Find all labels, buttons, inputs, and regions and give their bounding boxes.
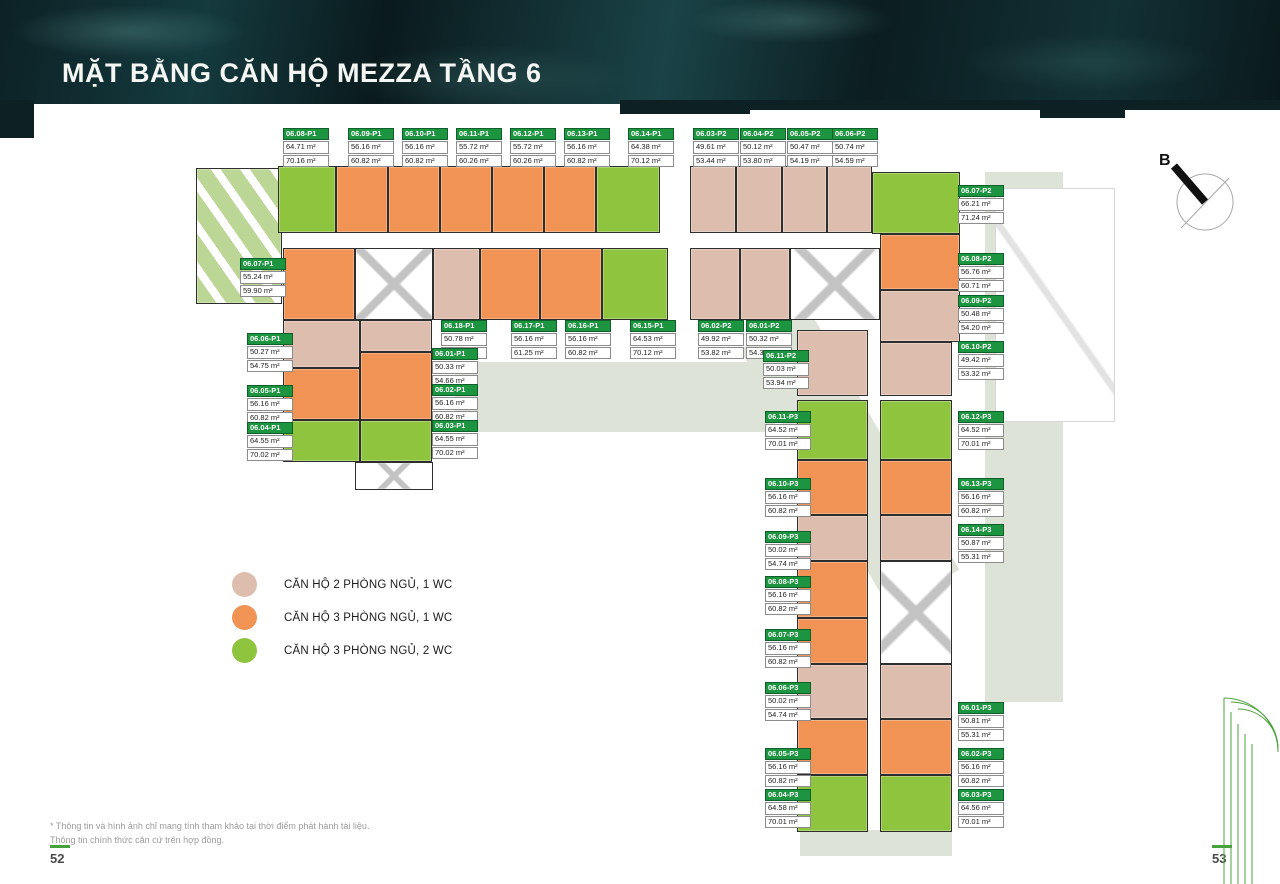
unit-code: 06.14-P3 <box>958 524 1004 536</box>
unit-code: 06.04-P2 <box>740 128 786 140</box>
plan-unit-block <box>544 166 596 233</box>
unit-label-06.02-P1: 06.02-P156.16 m²60.82 m² <box>432 384 478 423</box>
unit-area-gross: 53.44 m² <box>693 155 739 167</box>
unit-code: 06.02-P2 <box>698 320 744 332</box>
unit-label-06.12-P3: 06.12-P364.52 m²70.01 m² <box>958 411 1004 450</box>
unit-area-net: 64.52 m² <box>958 424 1004 436</box>
unit-area-gross: 53.32 m² <box>958 368 1004 380</box>
brochure-page: 06.08-P164.71 m²70.16 m²06.09-P156.16 m²… <box>0 0 1280 884</box>
plan-unit-block <box>827 166 872 233</box>
unit-label-06.08-P1: 06.08-P164.71 m²70.16 m² <box>283 128 329 167</box>
unit-label-06.01-P3: 06.01-P350.81 m²55.31 m² <box>958 702 1004 741</box>
unit-label-06.14-P3: 06.14-P350.87 m²55.31 m² <box>958 524 1004 563</box>
plan-unit-block <box>540 248 602 320</box>
unit-area-net: 64.56 m² <box>958 802 1004 814</box>
unit-area-gross: 70.12 m² <box>628 155 674 167</box>
plan-unit-block <box>433 248 480 320</box>
unit-area-net: 56.16 m² <box>564 141 610 153</box>
marble-fragment <box>745 100 1280 110</box>
unit-code: 06.02-P1 <box>432 384 478 396</box>
plan-unit-block <box>283 320 360 368</box>
unit-area-net: 50.78 m² <box>441 333 487 345</box>
unit-label-06.13-P1: 06.13-P156.16 m²60.82 m² <box>564 128 610 167</box>
unit-area-net: 50.12 m² <box>740 141 786 153</box>
unit-area-net: 56.16 m² <box>511 333 557 345</box>
unit-label-06.07-P2: 06.07-P266.21 m²71.24 m² <box>958 185 1004 224</box>
unit-area-net: 66.21 m² <box>958 198 1004 210</box>
unit-code: 06.06-P3 <box>765 682 811 694</box>
unit-label-06.07-P1: 06.07-P155.24 m²59.90 m² <box>240 258 286 297</box>
unit-area-net: 56.16 m² <box>765 589 811 601</box>
unit-area-gross: 53.80 m² <box>740 155 786 167</box>
unit-area-net: 50.03 m² <box>763 363 809 375</box>
unit-code: 06.10-P1 <box>402 128 448 140</box>
unit-label-06.02-P2: 06.02-P249.92 m²53.82 m² <box>698 320 744 359</box>
unit-code: 06.06-P2 <box>832 128 878 140</box>
marble-fragment <box>0 100 34 138</box>
unit-label-06.11-P2: 06.11-P250.03 m²53.94 m² <box>763 350 809 389</box>
unit-area-net: 50.81 m² <box>958 715 1004 727</box>
plan-unit-block <box>283 420 360 462</box>
unit-area-net: 49.92 m² <box>698 333 744 345</box>
unit-code: 06.07-P3 <box>765 629 811 641</box>
unit-area-net: 56.16 m² <box>565 333 611 345</box>
unit-code: 06.13-P1 <box>564 128 610 140</box>
unit-area-gross: 54.75 m² <box>247 360 293 372</box>
unit-label-06.14-P1: 06.14-P164.38 m²70.12 m² <box>628 128 674 167</box>
compass: B <box>1155 150 1241 240</box>
unit-code: 06.13-P3 <box>958 478 1004 490</box>
page-number-left-value: 52 <box>50 851 64 866</box>
unit-area-net: 50.27 m² <box>247 346 293 358</box>
unit-label-06.10-P2: 06.10-P249.42 m²53.32 m² <box>958 341 1004 380</box>
unit-code: 06.09-P1 <box>348 128 394 140</box>
unit-code: 06.01-P3 <box>958 702 1004 714</box>
unit-area-gross: 70.01 m² <box>765 816 811 828</box>
unit-label-06.16-P1: 06.16-P156.16 m²60.82 m² <box>565 320 611 359</box>
unit-label-06.09-P1: 06.09-P156.16 m²60.82 m² <box>348 128 394 167</box>
unit-area-gross: 60.82 m² <box>402 155 448 167</box>
plan-unit-block <box>880 775 952 832</box>
unit-area-net: 64.38 m² <box>628 141 674 153</box>
unit-area-gross: 70.01 m² <box>958 438 1004 450</box>
plan-unit-block <box>440 166 492 233</box>
unit-code: 06.03-P1 <box>432 420 478 432</box>
legend-label: CĂN HỘ 3 PHÒNG NGỦ, 2 WC <box>284 645 452 657</box>
unit-label-06.12-P1: 06.12-P155.72 m²60.26 m² <box>510 128 556 167</box>
unit-label-06.17-P1: 06.17-P156.16 m²61.25 m² <box>511 320 557 359</box>
unit-code: 06.09-P2 <box>958 295 1004 307</box>
unit-label-06.08-P2: 06.08-P256.76 m²60.71 m² <box>958 253 1004 292</box>
unit-area-gross: 54.74 m² <box>765 709 811 721</box>
plan-unit-block <box>360 352 432 420</box>
unit-code: 06.09-P3 <box>765 531 811 543</box>
plan-unit-block <box>388 166 440 233</box>
plan-unit-block <box>355 248 433 320</box>
unit-area-gross: 70.02 m² <box>432 447 478 459</box>
unit-area-net: 49.61 m² <box>693 141 739 153</box>
unit-area-net: 55.24 m² <box>240 271 286 283</box>
plan-unit-block <box>880 342 952 396</box>
unit-code: 06.12-P1 <box>510 128 556 140</box>
plan-unit-block <box>690 166 736 233</box>
footnote-line1: * Thông tin và hình ảnh chỉ mang tính th… <box>50 820 369 834</box>
plan-unit-block <box>492 166 544 233</box>
unit-code: 06.07-P1 <box>240 258 286 270</box>
plan-unit-block <box>596 166 660 233</box>
unit-area-net: 56.16 m² <box>958 761 1004 773</box>
unit-label-06.05-P1: 06.05-P156.16 m²60.82 m² <box>247 385 293 424</box>
unit-code: 06.06-P1 <box>247 333 293 345</box>
unit-label-06.02-P3: 06.02-P356.16 m²60.82 m² <box>958 748 1004 787</box>
unit-label-06.06-P2: 06.06-P250.74 m²54.59 m² <box>832 128 878 167</box>
floor-plan: 06.08-P164.71 m²70.16 m²06.09-P156.16 m²… <box>0 0 1280 884</box>
unit-code: 06.04-P1 <box>247 422 293 434</box>
unit-label-06.11-P1: 06.11-P155.72 m²60.26 m² <box>456 128 502 167</box>
unit-label-06.04-P3: 06.04-P364.58 m²70.01 m² <box>765 789 811 828</box>
unit-area-net: 56.16 m² <box>348 141 394 153</box>
unit-area-net: 64.55 m² <box>247 435 293 447</box>
unit-area-net: 56.16 m² <box>765 642 811 654</box>
unit-code: 06.02-P3 <box>958 748 1004 760</box>
page-number-left: 52 <box>50 845 70 866</box>
plan-unit-block <box>736 166 782 233</box>
unit-code: 06.01-P1 <box>432 348 478 360</box>
unit-area-gross: 59.90 m² <box>240 285 286 297</box>
unit-area-gross: 60.82 m² <box>348 155 394 167</box>
unit-area-gross: 53.94 m² <box>763 377 809 389</box>
unit-area-gross: 60.26 m² <box>456 155 502 167</box>
footnote-line2: Thông tin chính thức căn cứ trên hợp đồn… <box>50 834 369 848</box>
unit-label-06.03-P3: 06.03-P364.56 m²70.01 m² <box>958 789 1004 828</box>
unit-area-net: 56.76 m² <box>958 266 1004 278</box>
plan-unit-block <box>880 719 952 775</box>
unit-area-net: 56.16 m² <box>432 397 478 409</box>
plan-unit-block <box>740 248 790 320</box>
unit-label-06.01-P1: 06.01-P150.33 m²54.66 m² <box>432 348 478 387</box>
legend: CĂN HỘ 2 PHÒNG NGỦ, 1 WCCĂN HỘ 3 PHÒNG N… <box>232 568 452 667</box>
unit-label-06.06-P1: 06.06-P150.27 m²54.75 m² <box>247 333 293 372</box>
unit-area-net: 50.02 m² <box>765 695 811 707</box>
unit-area-gross: 60.82 m² <box>564 155 610 167</box>
unit-area-net: 64.55 m² <box>432 433 478 445</box>
unit-code: 06.18-P1 <box>441 320 487 332</box>
plan-unit-block <box>790 248 880 320</box>
legend-swatch-icon <box>232 638 257 663</box>
unit-label-06.08-P3: 06.08-P356.16 m²60.82 m² <box>765 576 811 615</box>
unit-area-gross: 54.74 m² <box>765 558 811 570</box>
plan-unit-block <box>355 462 433 490</box>
legend-swatch-icon <box>232 605 257 630</box>
unit-area-gross: 61.25 m² <box>511 347 557 359</box>
plan-unit-block <box>782 166 827 233</box>
unit-code: 06.05-P2 <box>787 128 833 140</box>
unit-area-gross: 60.82 m² <box>958 775 1004 787</box>
unit-area-gross: 60.82 m² <box>565 347 611 359</box>
plan-unit-block <box>880 234 960 290</box>
unit-area-net: 50.32 m² <box>746 333 792 345</box>
unit-code: 06.10-P2 <box>958 341 1004 353</box>
unit-area-net: 55.72 m² <box>456 141 502 153</box>
unit-code: 06.08-P3 <box>765 576 811 588</box>
unit-code: 06.11-P3 <box>765 411 811 423</box>
unit-code: 06.12-P3 <box>958 411 1004 423</box>
unit-code: 06.03-P2 <box>693 128 739 140</box>
plan-unit-block <box>283 368 360 420</box>
unit-area-gross: 60.26 m² <box>510 155 556 167</box>
unit-area-net: 56.16 m² <box>402 141 448 153</box>
unit-area-gross: 55.31 m² <box>958 551 1004 563</box>
unit-label-06.03-P1: 06.03-P164.55 m²70.02 m² <box>432 420 478 459</box>
unit-code: 06.08-P1 <box>283 128 329 140</box>
unit-area-gross: 71.24 m² <box>958 212 1004 224</box>
unit-area-net: 50.33 m² <box>432 361 478 373</box>
unit-area-net: 64.58 m² <box>765 802 811 814</box>
plan-unit-block <box>880 460 952 515</box>
legend-item: CĂN HỘ 3 PHÒNG NGỦ, 2 WC <box>232 634 452 667</box>
unit-label-06.09-P2: 06.09-P250.48 m²54.20 m² <box>958 295 1004 334</box>
unit-code: 06.05-P3 <box>765 748 811 760</box>
unit-area-gross: 60.82 m² <box>765 775 811 787</box>
unit-area-net: 50.74 m² <box>832 141 878 153</box>
unit-area-net: 56.16 m² <box>765 491 811 503</box>
unit-area-gross: 60.82 m² <box>765 656 811 668</box>
unit-code: 06.16-P1 <box>565 320 611 332</box>
plan-unit-block <box>602 248 668 320</box>
legend-swatch-icon <box>232 572 257 597</box>
unit-area-gross: 54.59 m² <box>832 155 878 167</box>
unit-area-gross: 70.01 m² <box>958 816 1004 828</box>
unit-area-gross: 60.82 m² <box>765 603 811 615</box>
plan-unit-block <box>872 172 960 234</box>
plan-unit-block <box>880 515 952 561</box>
unit-area-net: 64.53 m² <box>630 333 676 345</box>
legend-label: CĂN HỘ 2 PHÒNG NGỦ, 1 WC <box>284 579 452 591</box>
unit-area-gross: 60.82 m² <box>958 505 1004 517</box>
compass-north-label: B <box>1159 152 1171 170</box>
unit-area-gross: 60.82 m² <box>765 505 811 517</box>
unit-code: 06.05-P1 <box>247 385 293 397</box>
unit-label-06.03-P2: 06.03-P249.61 m²53.44 m² <box>693 128 739 167</box>
unit-label-06.05-P2: 06.05-P250.47 m²54.19 m² <box>787 128 833 167</box>
unit-code: 06.11-P2 <box>763 350 809 362</box>
unit-code: 06.10-P3 <box>765 478 811 490</box>
marble-fragment <box>1040 108 1125 118</box>
unit-label-06.10-P1: 06.10-P156.16 m²60.82 m² <box>402 128 448 167</box>
unit-code: 06.11-P1 <box>456 128 502 140</box>
legend-label: CĂN HỘ 3 PHÒNG NGỦ, 1 WC <box>284 612 452 624</box>
unit-area-net: 64.52 m² <box>765 424 811 436</box>
unit-area-gross: 70.01 m² <box>765 438 811 450</box>
unit-area-gross: 53.82 m² <box>698 347 744 359</box>
unit-area-gross: 60.71 m² <box>958 280 1004 292</box>
unit-code: 06.04-P3 <box>765 789 811 801</box>
unit-code: 06.01-P2 <box>746 320 792 332</box>
unit-code: 06.14-P1 <box>628 128 674 140</box>
unit-code: 06.17-P1 <box>511 320 557 332</box>
unit-label-06.06-P3: 06.06-P350.02 m²54.74 m² <box>765 682 811 721</box>
unit-code: 06.07-P2 <box>958 185 1004 197</box>
unit-area-net: 64.71 m² <box>283 141 329 153</box>
unit-code: 06.03-P3 <box>958 789 1004 801</box>
unit-label-06.05-P3: 06.05-P356.16 m²60.82 m² <box>765 748 811 787</box>
unit-area-net: 50.47 m² <box>787 141 833 153</box>
unit-code: 06.15-P1 <box>630 320 676 332</box>
plan-unit-block <box>283 248 355 320</box>
unit-label-06.11-P3: 06.11-P364.52 m²70.01 m² <box>765 411 811 450</box>
unit-area-net: 49.42 m² <box>958 354 1004 366</box>
unit-area-gross: 70.12 m² <box>630 347 676 359</box>
unit-area-net: 56.16 m² <box>958 491 1004 503</box>
plan-unit-block <box>360 420 432 462</box>
plan-unit-block <box>690 248 740 320</box>
unit-label-06.10-P3: 06.10-P356.16 m²60.82 m² <box>765 478 811 517</box>
plan-unit-block <box>880 400 952 460</box>
plan-unit-block <box>360 320 432 352</box>
page-title: MẶT BẰNG CĂN HỘ MEZZA TẦNG 6 <box>62 58 541 89</box>
plan-unit-block <box>880 664 952 719</box>
unit-label-06.07-P3: 06.07-P356.16 m²60.82 m² <box>765 629 811 668</box>
plan-unit-block <box>336 166 388 233</box>
legend-item: CĂN HỘ 2 PHÒNG NGỦ, 1 WC <box>232 568 452 601</box>
unit-area-net: 50.87 m² <box>958 537 1004 549</box>
unit-code: 06.08-P2 <box>958 253 1004 265</box>
unit-area-net: 56.16 m² <box>765 761 811 773</box>
plan-unit-block <box>480 248 540 320</box>
legend-item: CĂN HỘ 3 PHÒNG NGỦ, 1 WC <box>232 601 452 634</box>
plan-unit-block <box>278 166 336 233</box>
unit-area-gross: 70.02 m² <box>247 449 293 461</box>
unit-area-net: 56.16 m² <box>247 398 293 410</box>
unit-area-gross: 55.31 m² <box>958 729 1004 741</box>
unit-label-06.04-P1: 06.04-P164.55 m²70.02 m² <box>247 422 293 461</box>
unit-area-gross: 54.19 m² <box>787 155 833 167</box>
unit-area-gross: 54.20 m² <box>958 322 1004 334</box>
unit-label-06.09-P3: 06.09-P350.02 m²54.74 m² <box>765 531 811 570</box>
unit-area-net: 55.72 m² <box>510 141 556 153</box>
unit-label-06.15-P1: 06.15-P164.53 m²70.12 m² <box>630 320 676 359</box>
unit-area-net: 50.48 m² <box>958 308 1004 320</box>
unit-label-06.04-P2: 06.04-P250.12 m²53.80 m² <box>740 128 786 167</box>
decor-arch-icon <box>1178 682 1280 884</box>
plan-unit-block <box>880 290 960 342</box>
plan-unit-block <box>880 561 952 664</box>
page-dash-icon <box>50 845 70 848</box>
unit-label-06.13-P3: 06.13-P356.16 m²60.82 m² <box>958 478 1004 517</box>
unit-area-net: 50.02 m² <box>765 544 811 556</box>
unit-area-gross: 70.16 m² <box>283 155 329 167</box>
marble-fragment <box>620 100 750 114</box>
footnote: * Thông tin và hình ảnh chỉ mang tính th… <box>50 820 369 847</box>
